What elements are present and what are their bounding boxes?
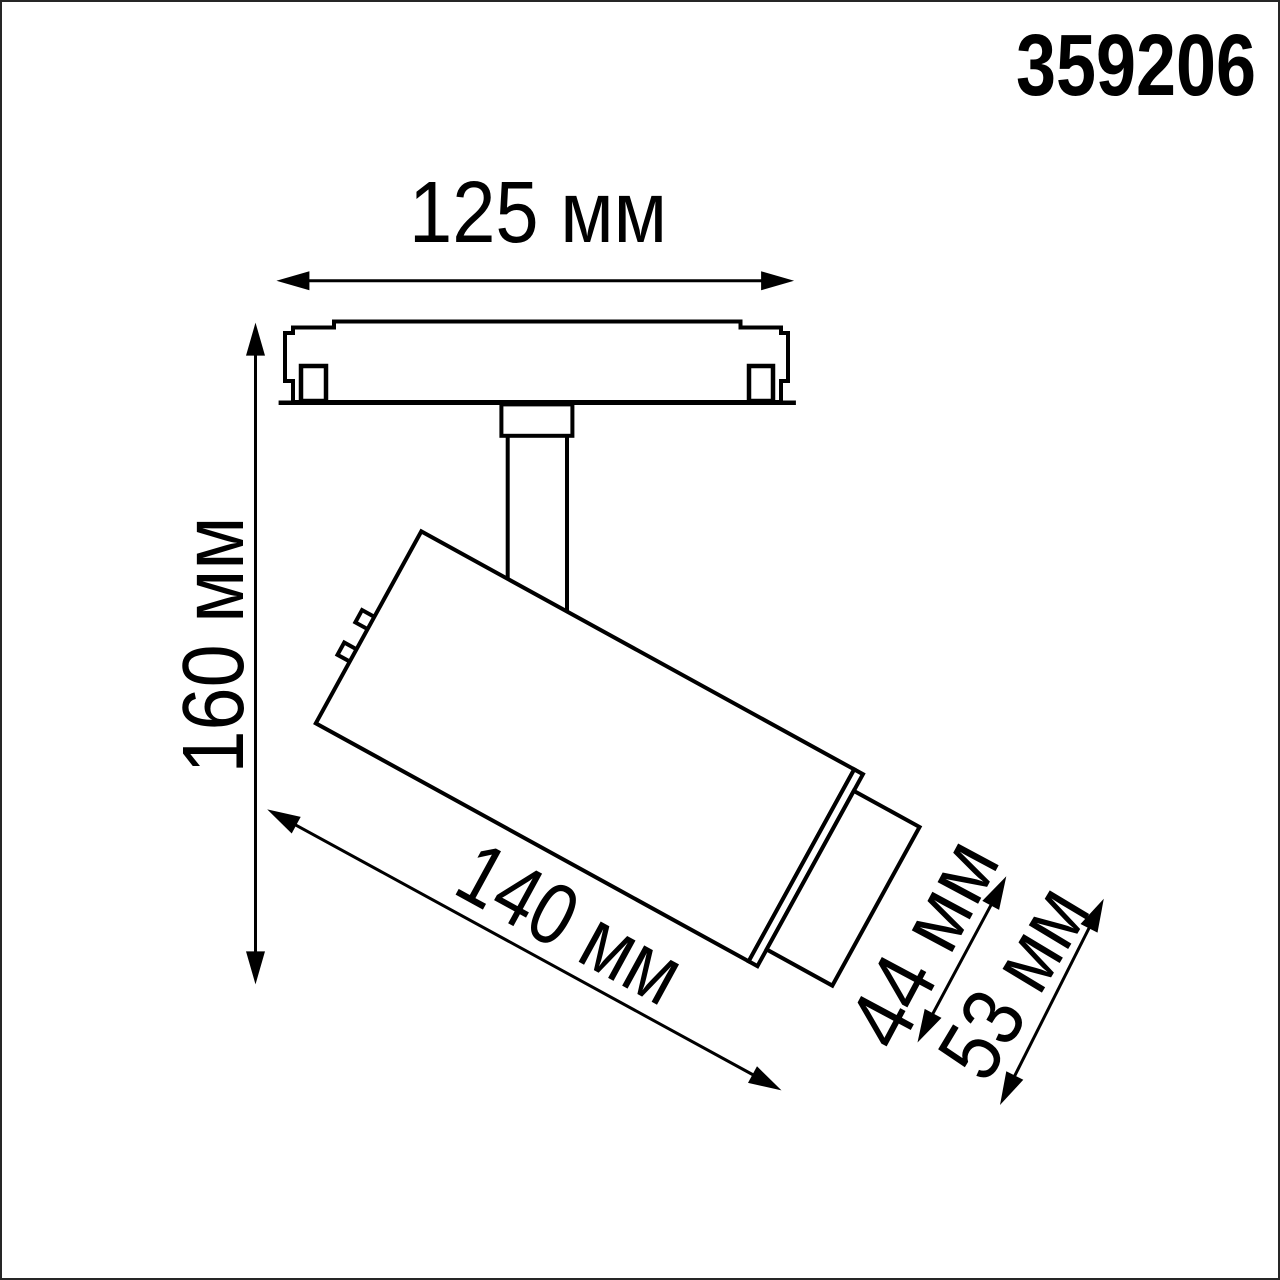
svg-text:125 мм: 125 мм <box>409 164 667 261</box>
svg-text:160 мм: 160 мм <box>165 517 262 774</box>
svg-text:359206: 359206 <box>1016 17 1256 114</box>
